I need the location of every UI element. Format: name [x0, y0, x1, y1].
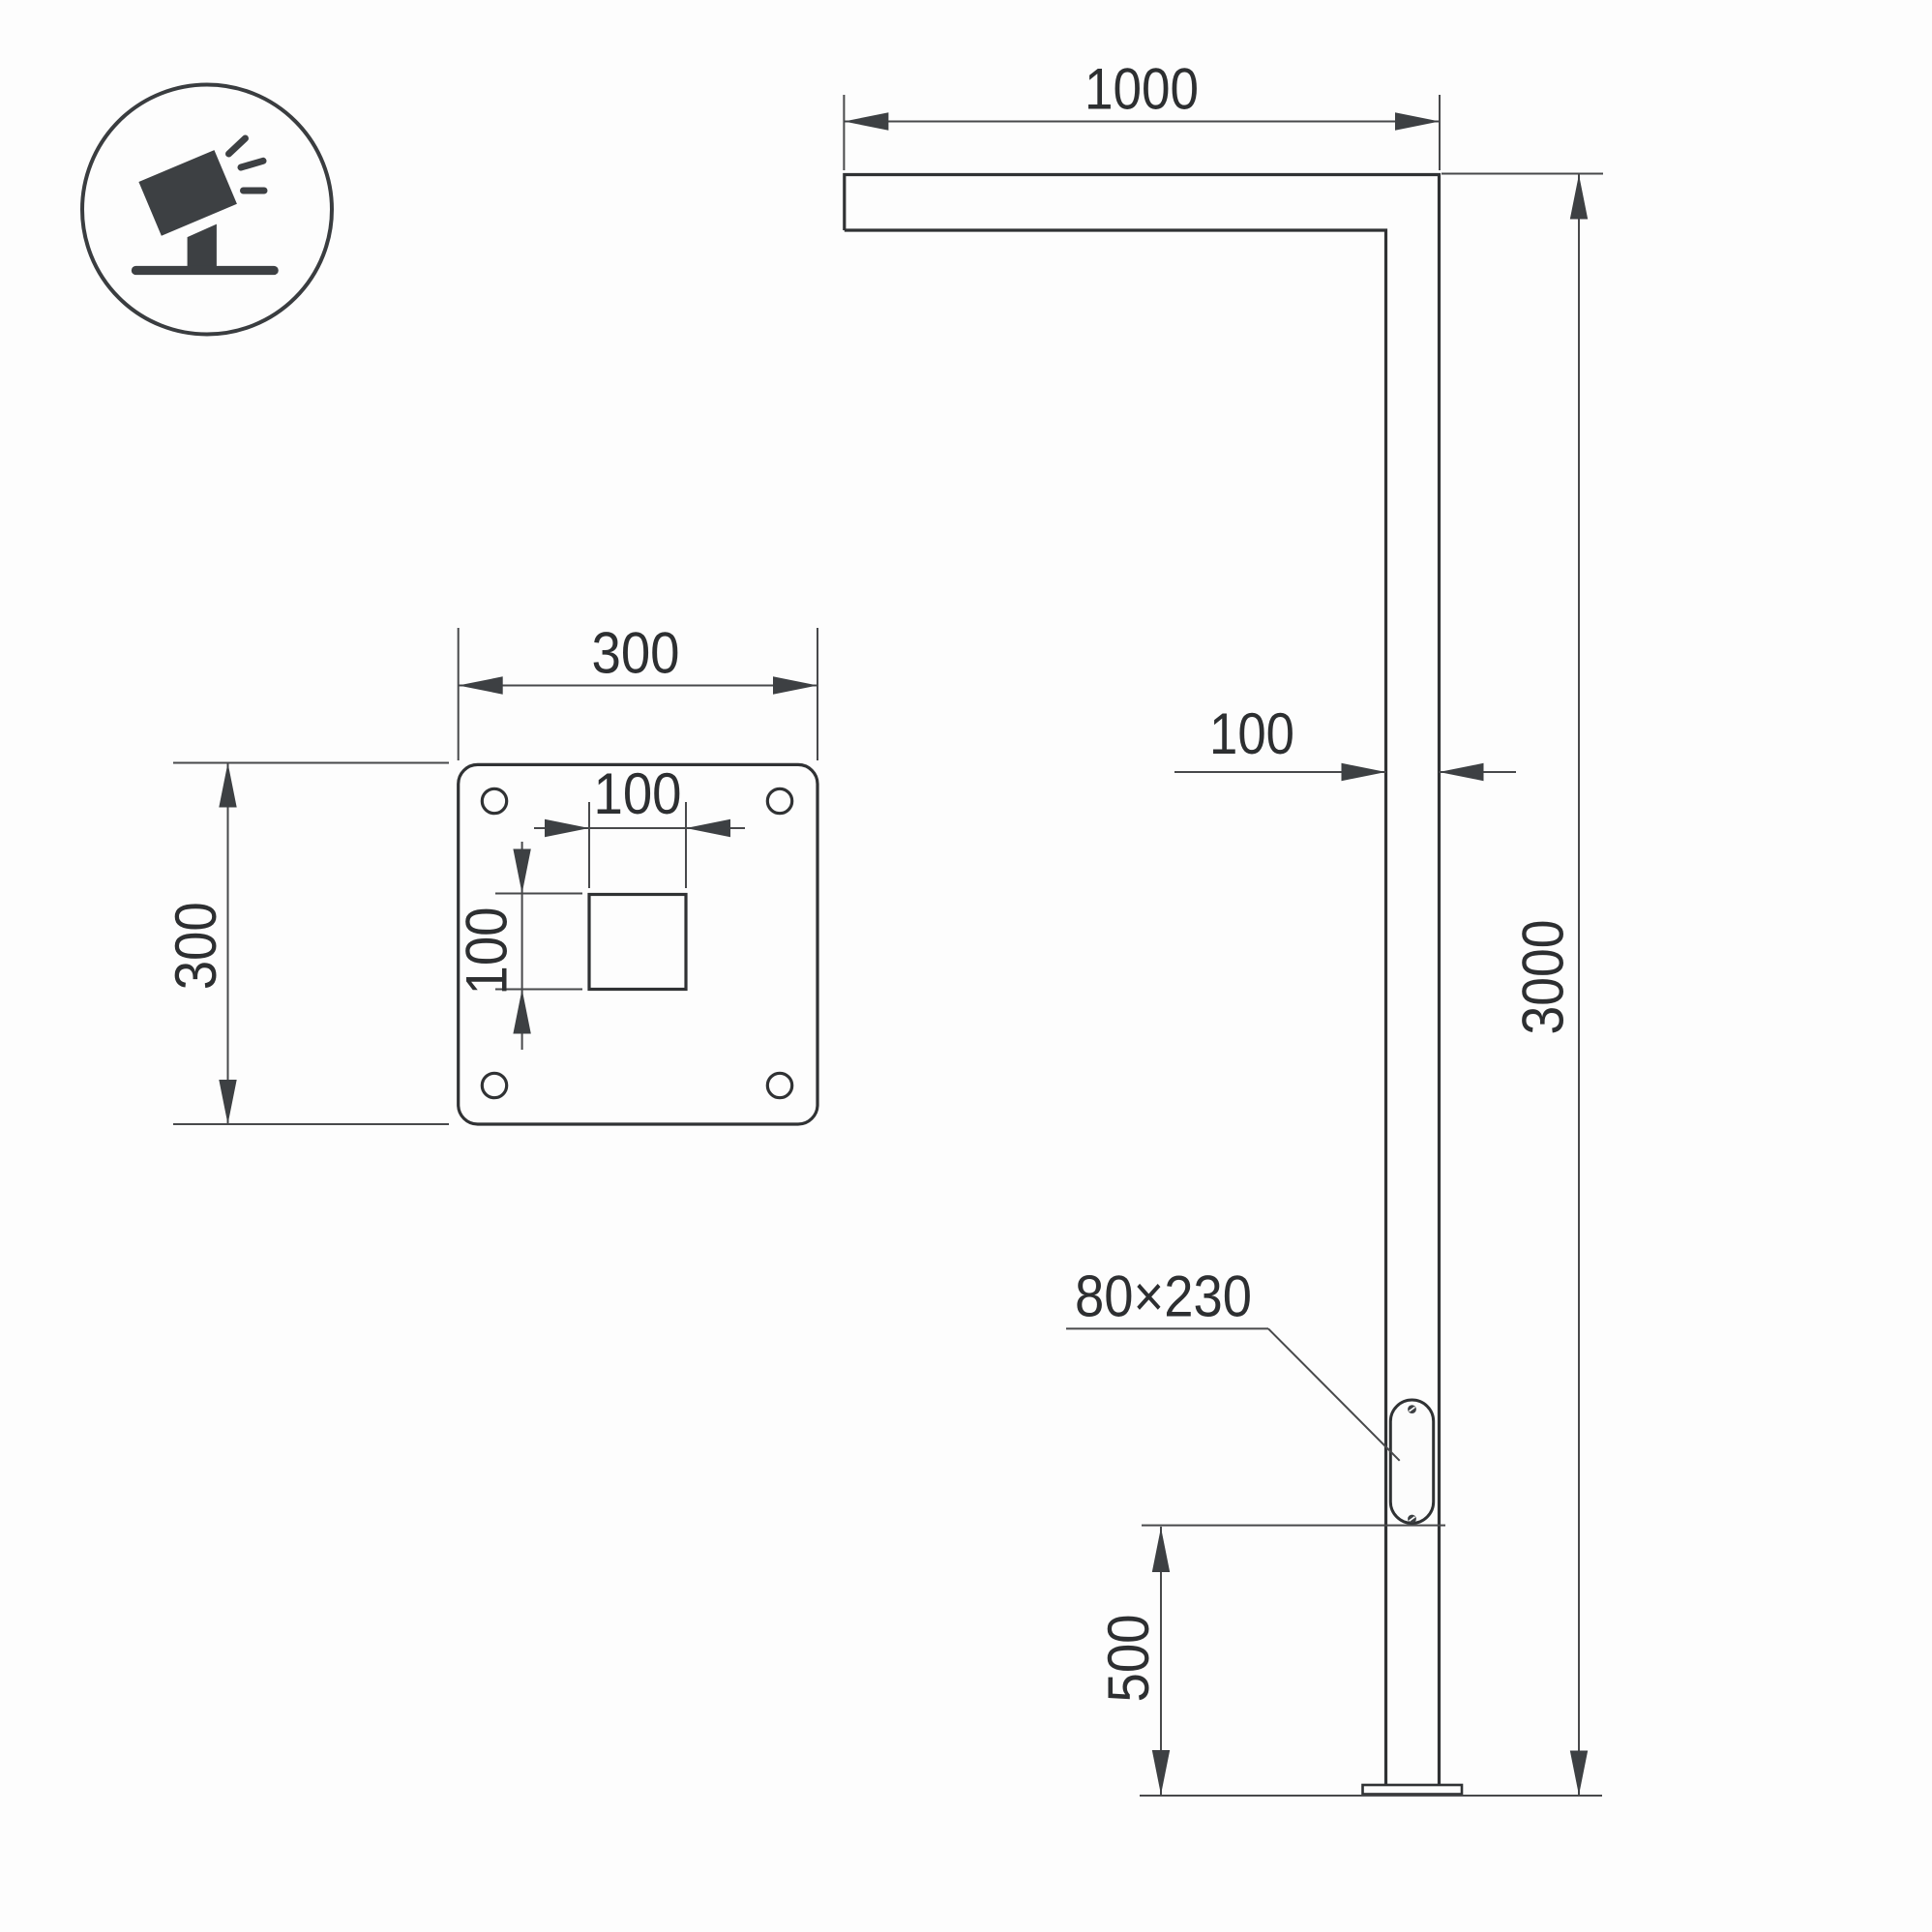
svg-text:100: 100: [455, 907, 520, 996]
svg-text:500: 500: [1096, 1615, 1161, 1703]
svg-text:1000: 1000: [1085, 56, 1199, 121]
svg-text:3000: 3000: [1511, 920, 1576, 1035]
svg-text:80×230: 80×230: [1075, 1264, 1252, 1329]
svg-text:100: 100: [594, 761, 682, 826]
svg-text:300: 300: [163, 902, 228, 990]
svg-text:100: 100: [1209, 701, 1294, 766]
svg-text:300: 300: [592, 621, 680, 686]
